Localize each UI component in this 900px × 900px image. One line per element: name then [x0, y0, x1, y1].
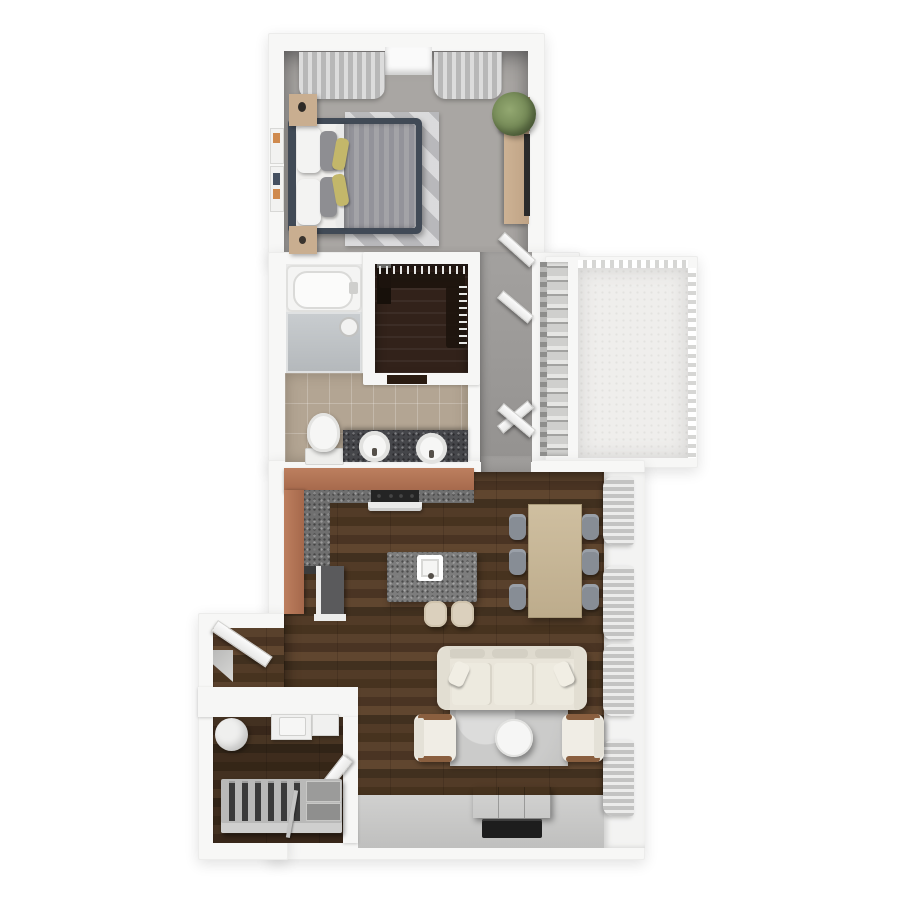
tub-faucet — [349, 282, 358, 294]
floor-plan-canvas — [0, 0, 900, 900]
wall-art-2-detail — [273, 173, 280, 185]
sofa-cushion-2 — [494, 663, 534, 705]
accent-chair-left-back — [414, 718, 424, 758]
refrigerator — [316, 566, 344, 616]
island-faucet — [428, 573, 434, 579]
rack-slat-4 — [268, 783, 274, 821]
balcony-railing-top — [578, 260, 688, 268]
balcony-railing-right — [688, 268, 696, 458]
faucet-left — [372, 448, 377, 456]
barstool-2 — [451, 601, 474, 627]
sofa-headrest-2 — [492, 649, 528, 658]
rack-bin-top — [306, 781, 341, 802]
laundry-right-wall — [343, 717, 358, 843]
closet-door-threshold — [387, 375, 427, 384]
tv-on-dresser — [524, 134, 530, 216]
toilet-bowl — [307, 413, 340, 452]
living-curtain-2 — [603, 566, 634, 640]
bathtub-basin — [293, 271, 353, 309]
hangers-top-rail — [379, 266, 465, 274]
wall-art-1-detail — [273, 133, 280, 143]
dining-chair-4 — [582, 514, 599, 540]
nightstand-upper-item — [298, 102, 306, 112]
shower-head — [339, 317, 359, 337]
dining-chair-5 — [582, 549, 599, 575]
wall-art-frame-1 — [270, 128, 284, 164]
pillow-white-bottom — [297, 179, 321, 225]
potted-plant-foliage — [492, 92, 536, 136]
faucet-right — [429, 450, 434, 458]
living-curtain-4 — [603, 740, 634, 816]
linen-closet-items — [540, 262, 547, 456]
bedroom-curtain-left — [299, 52, 385, 99]
dining-chair-2 — [509, 549, 526, 575]
bedroom-curtain-right — [434, 52, 502, 99]
pillow-white-top — [297, 127, 321, 173]
stove-front — [368, 502, 422, 511]
dining-chair-1 — [509, 514, 526, 540]
living-curtain-1 — [603, 477, 634, 545]
storage-rack — [221, 779, 342, 833]
sofa-headrest-1 — [449, 649, 485, 658]
media-console — [473, 787, 551, 818]
living-curtain-3 — [603, 644, 634, 716]
vanity-sink-left — [359, 431, 390, 462]
vanity-sink-right — [416, 433, 447, 464]
hangers-right-rail — [459, 286, 467, 348]
wall-art-frame-2 — [270, 166, 284, 212]
refrigerator-base — [314, 614, 346, 621]
dryer — [312, 714, 339, 736]
barstool-1 — [424, 601, 447, 627]
kitchen-upper-cabinet-run — [284, 468, 474, 492]
nightstand-lower-item — [299, 236, 306, 244]
dining-chair-6 — [582, 584, 599, 610]
rack-slat-1 — [229, 783, 235, 821]
kitchen-left-cabinet-run — [284, 490, 304, 614]
wall-mounted-tv — [482, 819, 542, 838]
striped-duvet — [344, 124, 416, 228]
wall-art-2-detail2 — [273, 189, 280, 199]
sofa-headrest-3 — [535, 649, 571, 658]
accent-chair-left — [414, 714, 456, 762]
kitchen-counter-left — [304, 490, 330, 568]
laundry-top-wall — [198, 687, 358, 717]
bedroom-window-recess — [385, 47, 432, 75]
sofa-armrest-right — [574, 648, 587, 710]
water-heater — [215, 718, 248, 751]
dining-chair-3 — [509, 584, 526, 610]
washer-lid — [279, 717, 306, 736]
rack-slat-5 — [281, 783, 287, 821]
rack-bin-bottom — [306, 803, 341, 821]
accent-chair-right — [562, 714, 604, 762]
round-coffee-table — [495, 719, 533, 757]
balcony-floor — [578, 268, 688, 458]
dining-table — [528, 504, 582, 618]
rack-slat-3 — [255, 783, 261, 821]
accent-chair-right-back — [594, 718, 604, 758]
rack-slat-2 — [242, 783, 248, 821]
